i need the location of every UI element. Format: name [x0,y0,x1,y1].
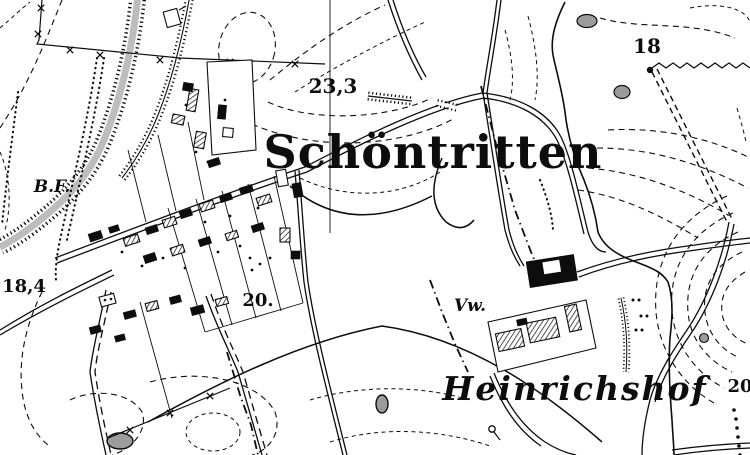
village-name-label: Schöntritten [264,125,603,179]
elevation-18-label: 18 [633,34,661,58]
pond-southwest [107,433,133,449]
farm-plot-outline [207,60,256,155]
map-canvas[interactable]: Schöntritten Heinrichshof 23,3 18 18,4 2… [0,0,750,455]
bf-abbreviation-label: B.F. [33,177,71,197]
elevation-18-4-label: 18,4 [2,276,46,297]
pond-small-mid [614,86,630,99]
pond-dot-southeast [700,334,709,343]
spot-height-18-point [647,67,653,73]
map-image: Schöntritten Heinrichshof 23,3 18 18,4 2… [0,0,750,455]
pond-centre [376,395,388,413]
estate-name-label: Heinrichshof [441,369,710,408]
pond-small-north [577,15,597,28]
elevation-20-center-label: 20. [242,290,273,311]
elevation-20-edge-label: 20 [727,376,750,397]
elevation-233-label: 23,3 [309,74,358,98]
vorwerk-abbreviation-label: Vw. [454,296,486,316]
